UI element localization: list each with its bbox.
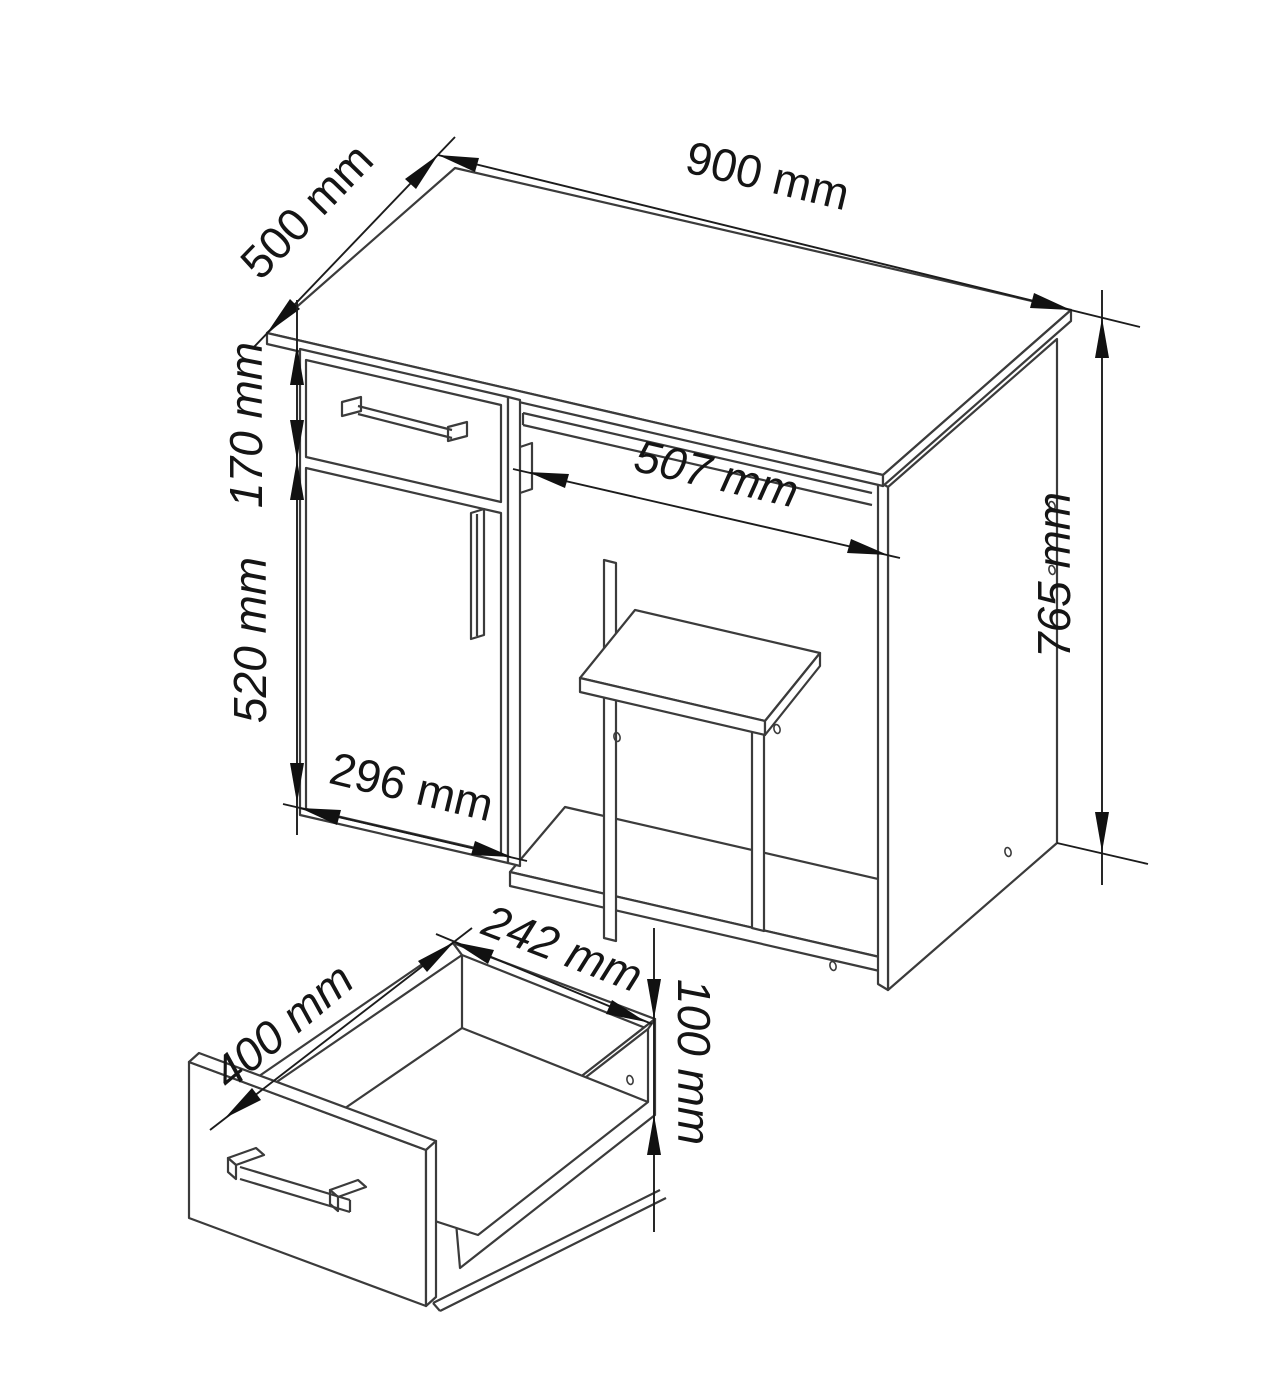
- dim-label-desk-height: 765 mm: [1028, 492, 1080, 658]
- right-divider: [752, 726, 764, 931]
- front-panel-right-band: [426, 1141, 436, 1306]
- dim-drawer-inner-width: 242 mm: [436, 894, 652, 1024]
- dim-label-drawer-side-height: 100 mm: [668, 979, 720, 1145]
- cabinet-side-strip: [508, 397, 520, 866]
- desk-dimension-diagram: 500 mm 900 mm 170 mm 520 mm 296 mm: [0, 0, 1286, 1400]
- right-divider-panel: [752, 726, 764, 931]
- dim-label-desk-width: 900 mm: [681, 131, 855, 220]
- desk-figure: 500 mm 900 mm 170 mm 520 mm 296 mm: [220, 131, 1148, 990]
- arrowhead-icon: [1095, 812, 1109, 852]
- arrowhead-icon: [647, 979, 661, 1019]
- arrowhead-icon: [1095, 318, 1109, 358]
- left-divider: [604, 560, 616, 941]
- dim-door-height: 520 mm: [224, 460, 304, 803]
- arrowhead-icon: [528, 472, 569, 488]
- dim-label-drawer-front-height: 170 mm: [220, 342, 272, 508]
- door-handle: [471, 509, 484, 639]
- screw-hole-icon: [829, 961, 837, 971]
- dim-label-door-height: 520 mm: [224, 557, 276, 723]
- left-divider-lower: [604, 694, 616, 941]
- right-panel-front-band: [878, 481, 888, 990]
- technical-drawing-canvas: 500 mm 900 mm 170 mm 520 mm 296 mm: [0, 0, 1286, 1400]
- dim-drawer-side-height: 100 mm: [647, 928, 720, 1232]
- bottom-board-cap: [433, 1303, 440, 1311]
- drawer-figure: 400 mm 242 mm 100 mm: [189, 894, 720, 1311]
- screw-hole-icon: [773, 724, 781, 734]
- arrowhead-icon: [1030, 293, 1071, 310]
